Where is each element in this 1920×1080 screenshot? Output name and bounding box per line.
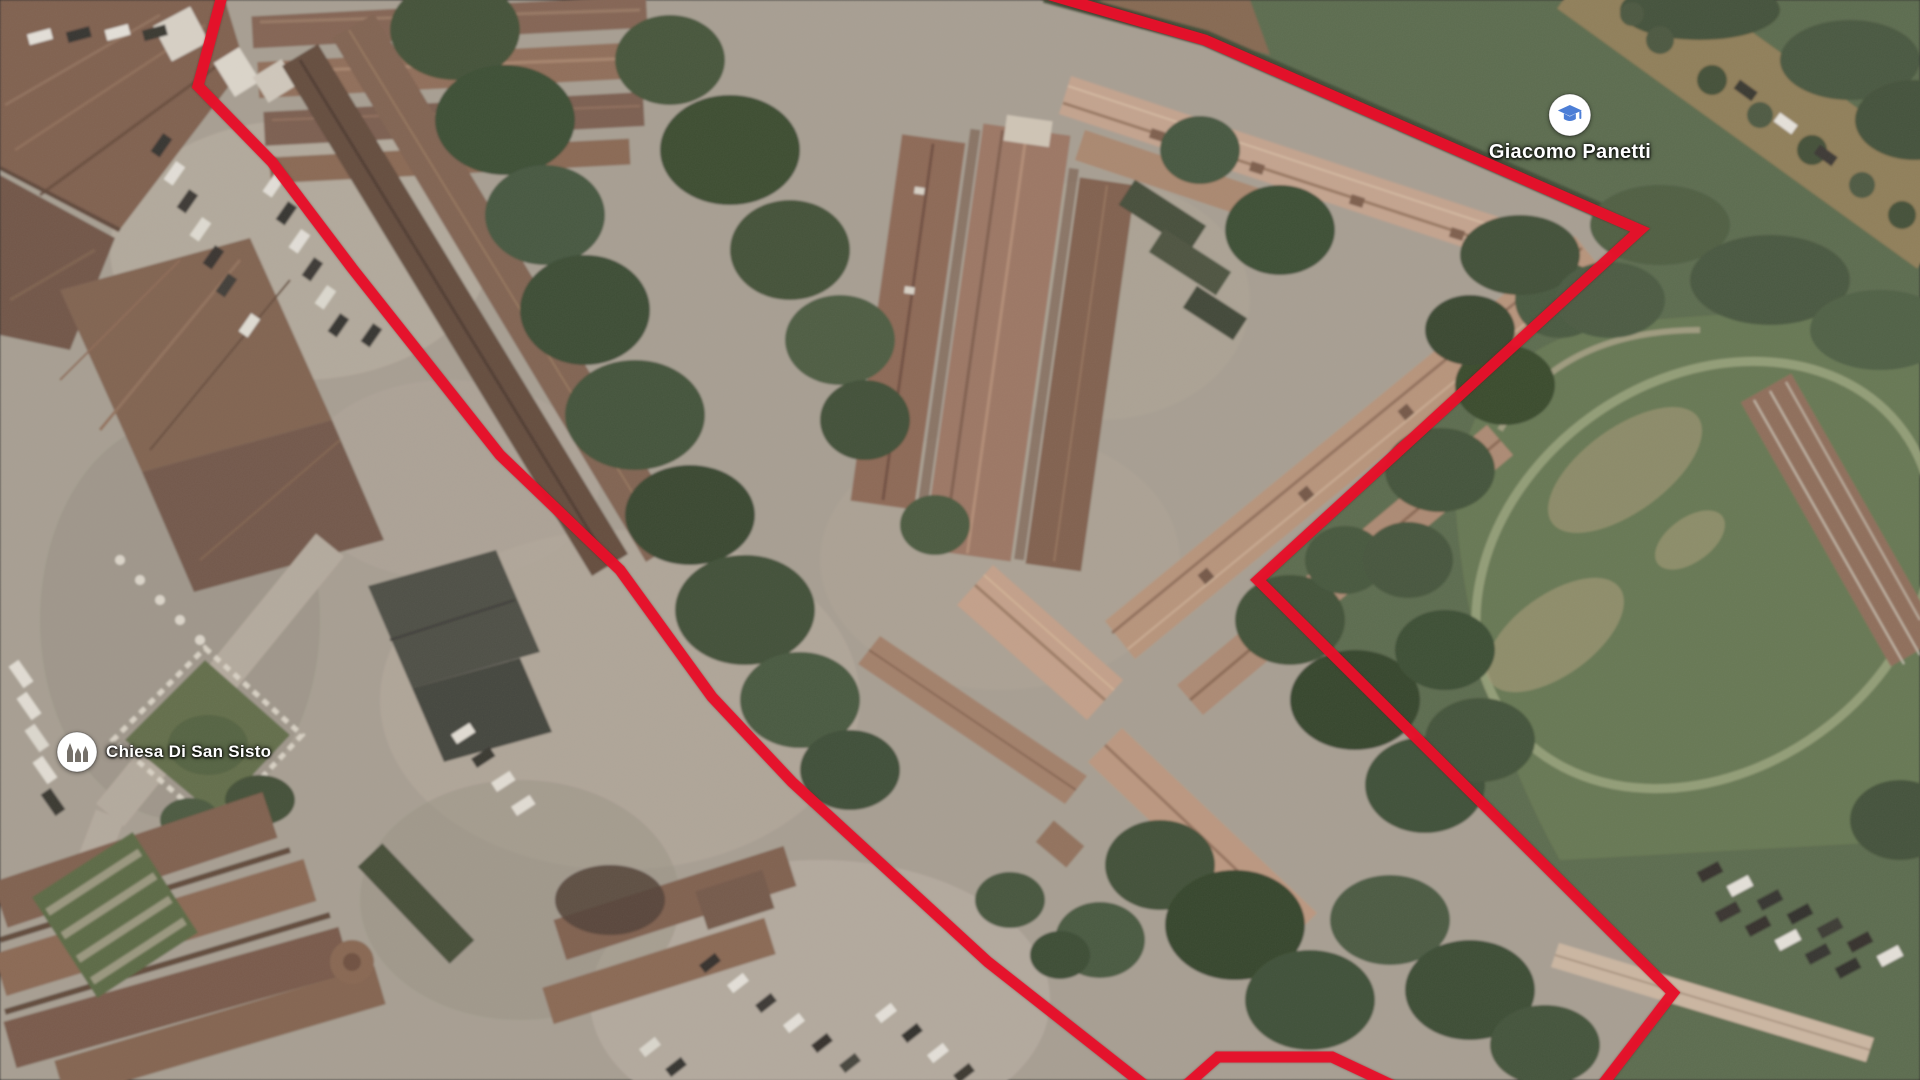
poi-label-text: Giacomo Panetti (1489, 141, 1651, 164)
labels-layer: Chiesa Di San Sisto Giacomo Panetti (0, 0, 1920, 1080)
poi-label-text: Chiesa Di San Sisto (106, 742, 271, 762)
map-canvas[interactable]: Chiesa Di San Sisto Giacomo Panetti (0, 0, 1920, 1080)
school-icon (1548, 93, 1592, 137)
map-label-chiesa-di-san-sisto[interactable]: Chiesa Di San Sisto (56, 731, 271, 773)
map-label-giacomo-panetti[interactable]: Giacomo Panetti (1489, 93, 1651, 164)
church-icon (56, 731, 98, 773)
